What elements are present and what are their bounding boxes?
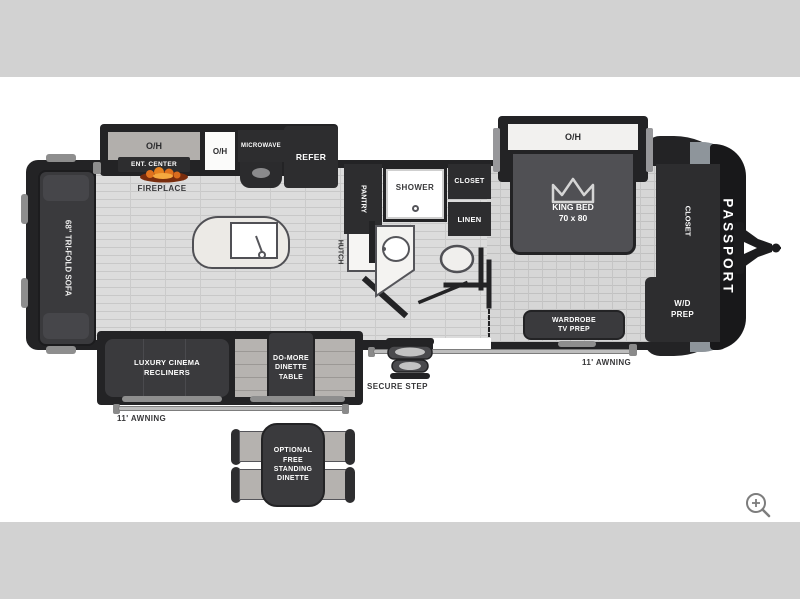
wd-prep-label: W/D PREP bbox=[671, 299, 694, 320]
slide-tab bbox=[646, 128, 653, 172]
ent-center-label: ENT. CENTER bbox=[131, 161, 177, 168]
awning-bar-right bbox=[373, 349, 631, 354]
linen-label: LINEN bbox=[458, 215, 482, 224]
recliners-label: LUXURY CINEMA RECLINERS bbox=[134, 358, 200, 378]
slide-stop-tab bbox=[46, 154, 76, 162]
island-sink bbox=[230, 222, 278, 259]
free-dinette-label: OPTIONAL FREE STANDING DINETTE bbox=[274, 446, 313, 484]
microwave-label: MICROWAVE bbox=[241, 143, 281, 149]
slide-handle bbox=[250, 396, 345, 402]
free-dinette-chair bbox=[345, 429, 355, 465]
rear-bumper-tab bbox=[21, 278, 28, 308]
pantry-label: PANTRY bbox=[360, 185, 367, 213]
dinette-bench bbox=[313, 337, 357, 399]
bedroom-overhead: O/H bbox=[506, 122, 640, 152]
refrigerator: REFER bbox=[284, 126, 338, 188]
awning-right-label: 11' AWNING bbox=[582, 358, 631, 367]
linen-closet: LINEN bbox=[448, 202, 491, 236]
entertainment-center: ENT. CENTER bbox=[118, 157, 190, 172]
sofa-armrest bbox=[43, 313, 89, 339]
free-dinette-chair bbox=[345, 467, 355, 503]
floorplan-image: 68" TRI-FOLD SOFA O/H ENT. CENTER O/H MI… bbox=[0, 0, 800, 599]
slide-tab bbox=[93, 162, 101, 174]
overhead-mid-label: O/H bbox=[213, 147, 227, 156]
awning-end-cap bbox=[342, 404, 349, 414]
bath-closet-label: CLOSET bbox=[454, 178, 484, 185]
king-bed-label: KING BED 70 x 80 bbox=[533, 200, 613, 226]
bottom-letterbox-bar bbox=[0, 522, 800, 599]
wd-prep: W/D PREP bbox=[645, 277, 720, 342]
awning-bar-left bbox=[118, 406, 344, 411]
cooktop bbox=[240, 162, 282, 188]
slide-tab bbox=[493, 128, 500, 172]
overhead-left-label: O/H bbox=[146, 141, 162, 151]
sofa-armrest bbox=[43, 175, 89, 201]
zoom-in-button[interactable] bbox=[740, 488, 774, 522]
slide-stop-tab bbox=[46, 346, 76, 354]
free-dinette-table: OPTIONAL FREE STANDING DINETTE bbox=[261, 423, 325, 507]
zoom-in-icon bbox=[740, 488, 774, 522]
shower-drain bbox=[412, 205, 419, 212]
rear-bumper-tab bbox=[21, 194, 28, 224]
bath-closet: CLOSET bbox=[448, 164, 491, 199]
dinette-table-label: DO-MORE DINETTE TABLE bbox=[273, 354, 309, 381]
shower-label: SHOWER bbox=[386, 183, 444, 192]
bedroom-overhead-label: O/H bbox=[565, 132, 581, 142]
brand-passport: PASSPORT bbox=[721, 198, 736, 295]
refer-label: REFER bbox=[296, 152, 326, 162]
overhead-cabinet-mid: O/H bbox=[203, 130, 237, 172]
front-closet-label: CLOSET bbox=[684, 206, 693, 236]
dinette-bench bbox=[233, 337, 269, 399]
hutch-label: HUTCH bbox=[337, 240, 344, 265]
wardrobe-label: WARDROBE TV PREP bbox=[552, 316, 596, 334]
awning-left-label: 11' AWNING bbox=[117, 414, 166, 423]
fireplace-label: FIREPLACE bbox=[120, 182, 204, 194]
cooktop-vent bbox=[252, 168, 270, 178]
wardrobe-tv-prep: WARDROBE TV PREP bbox=[523, 310, 625, 340]
dinette-table: DO-MORE DINETTE TABLE bbox=[269, 333, 313, 403]
sofa-label: 68" TRI-FOLD SOFA bbox=[64, 220, 73, 296]
hutch-cabinet bbox=[347, 232, 379, 272]
wardrobe-handle bbox=[558, 341, 596, 347]
secure-step-label: SECURE STEP bbox=[367, 382, 428, 391]
shower: SHOWER bbox=[383, 166, 447, 222]
top-letterbox-bar bbox=[0, 0, 800, 77]
awning-end-cap bbox=[629, 344, 637, 356]
cinema-recliners: LUXURY CINEMA RECLINERS bbox=[105, 339, 229, 397]
slide-handle bbox=[122, 396, 222, 402]
microwave: MICROWAVE bbox=[238, 130, 284, 162]
